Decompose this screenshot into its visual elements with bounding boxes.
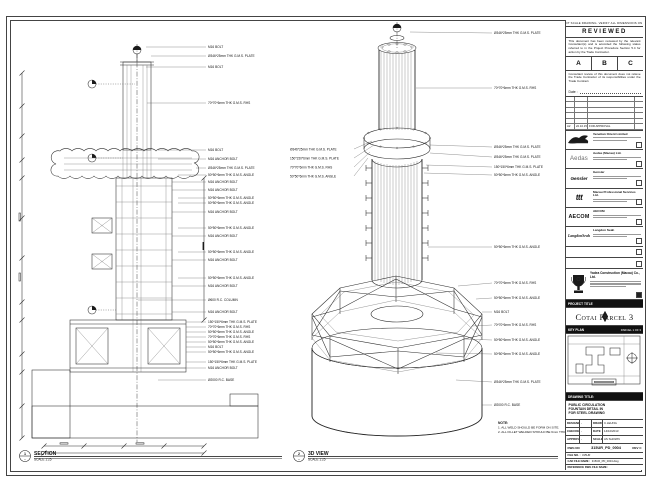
annotation-label: Ø346*25mm THK G.M.S. PLATE <box>494 145 541 149</box>
view-title: 3D VIEW <box>308 451 329 457</box>
detail-number: 2 <box>298 452 300 456</box>
cad-file-label: CAD FILE NAME : <box>568 460 591 463</box>
annotation-label: Ø346*25mm THK G.M.S. PLATE <box>208 54 255 58</box>
file-no-value: 315UR <box>582 454 590 457</box>
note-line: 2. ALL FILLET WELDED SHOULD BE 6mm THK. <box>498 430 566 434</box>
address-line-bar <box>593 217 627 218</box>
review-date-row: Date : <box>566 85 643 96</box>
iso-side-brackets <box>366 165 428 261</box>
annotation-label: Ø346*25mm THK G.M.S. PLATE <box>208 166 255 170</box>
dwg-no-label: DWG NO <box>568 446 580 450</box>
note-line: 1. ALL WELD SHOULD BE FORM ON SITE. <box>498 426 559 430</box>
consultant-row-aecom: AECOM AECOM <box>566 208 643 227</box>
annotation-label: M16 BOLT <box>208 45 223 49</box>
disclaimer-text: DO NOT SCALE DRAWING. VERIFY ALL DIMENSI… <box>566 21 643 25</box>
review-stamp: REVIEWED This document has been reviewed… <box>566 27 643 97</box>
annotation-label: 50*50*6mm THK G.M.S. ANGLE <box>208 276 254 280</box>
date-fill-line <box>580 90 641 94</box>
status-checkbox <box>636 238 642 244</box>
consultant-row-langdonseah: LangdonSeah Langdon Seah <box>566 227 643 246</box>
address-line-bar <box>590 281 641 282</box>
annotation-label: 150*150*6mm THK G.M.S. PLATE <box>494 165 543 169</box>
aecom-logo: AECOM <box>566 208 592 226</box>
revision-rev: A2 <box>566 124 575 129</box>
annotation-label: 150*150*6mm THK G.M.S. PLATE <box>208 360 257 364</box>
annotation-label: 70*70*6mm THK G.M.S. RHS <box>494 323 536 327</box>
annotation-label: 50*50*6mm THK G.M.S. ANGLE <box>208 173 254 177</box>
checked-label: CHECKED <box>566 428 580 435</box>
consultant-row-venetian: Venetian Orient Limited <box>566 131 643 150</box>
annotation-label: 70*70*6mm THK G.M.S. RHS <box>494 281 536 285</box>
revision-date: 22.10.15 <box>575 124 588 129</box>
address-line-bar <box>593 234 641 235</box>
drawn-label: DRAWN <box>592 420 603 427</box>
annotation-label: 50*50*6mm THK G.M.S. ANGLE <box>494 296 540 300</box>
iso-leaders <box>354 32 492 405</box>
annotation-label: Ø346*25mm THK G.M.S. PLATE <box>290 148 337 152</box>
detail-number: 1 <box>24 452 26 456</box>
iso-base-cylinder <box>312 328 482 436</box>
annotation-label: 150*150*6mm THK G.M.S. PLATE <box>208 320 257 324</box>
annotation-label: 50*50*6mm THK G.M.S. ANGLE <box>290 175 336 179</box>
address-line-bar <box>593 199 641 200</box>
consultant-name: Aedas (Macau) Ltd. <box>593 152 641 156</box>
iso-splash-pool <box>371 306 423 322</box>
address-line-bar <box>593 215 641 216</box>
drawing-title-text: PUBLIC CIRCULATION FOUNTAIN DETAIL IN FO… <box>566 401 643 420</box>
status-checkbox <box>636 261 642 267</box>
address-line-bar <box>590 286 626 287</box>
project-title-label: PROJECT TITLE <box>568 302 593 306</box>
annotation-label: Ø346*25mm THK G.M.S. PLATE <box>494 31 541 35</box>
annotation-label: M16 ANCHOR BOLT <box>208 157 238 161</box>
project-title-row: Cotai Parcel 3 <box>566 308 643 326</box>
view-title: SECTION <box>34 451 57 457</box>
annotation-label: M16 BOLT <box>208 148 223 152</box>
status-cell-c: C <box>618 57 643 70</box>
annotation-label: 70*70*6mm THK G.M.S. RHS <box>290 166 332 170</box>
project-title-bar: PROJECT TITLE <box>566 300 643 308</box>
annotation-label: 50*50*6mm THK G.M.S. ANGLE <box>208 350 254 354</box>
cad-file-value: 315UR_PD_0004.dwg <box>592 460 619 463</box>
view-scale: SCALE 1:25 <box>34 458 52 462</box>
revision-row: A2 22.10.15 FOR APPROVAL <box>566 124 643 130</box>
address-line-bar <box>593 176 641 177</box>
annotation-label: 50*50*6mm THK G.M.S. ANGLE <box>208 330 254 334</box>
file-no-label: FILE NO. : <box>568 454 581 457</box>
iso-flange-ring <box>363 127 431 159</box>
aedas-logo: Aedas <box>566 150 592 168</box>
annotation-label: 50*50*6mm THK G.M.S. ANGLE <box>208 340 254 344</box>
annotation-label: 50*50*6mm THK G.M.S. ANGLE <box>494 352 540 356</box>
review-stamp-title: REVIEWED <box>566 27 643 38</box>
annotation-label: 50*50*6mm THK G.M.S. ANGLE <box>494 173 540 177</box>
reference-dwg-row: REFERENCE DWG FILE NAME : <box>566 465 643 470</box>
review-stamp-paragraph: This document has been reviewed by the r… <box>566 38 643 56</box>
consultant-name: AECOM <box>593 210 641 214</box>
designed-value: - <box>580 420 592 427</box>
consultant-name: Macau Professional Services Ltd. <box>593 191 641 198</box>
level-marker-top <box>133 46 141 62</box>
drawing-title-label: DRAWING TITLE: <box>568 395 594 399</box>
annotation-label: M16 ANCHOR BOLT <box>208 258 238 262</box>
iso-frame-braces <box>312 279 482 369</box>
annotation-label: 50*50*6mm THK G.M.S. ANGLE <box>208 226 254 230</box>
status-checkbox <box>636 249 642 255</box>
annotation-label: 50*50*6mm THK G.M.S. ANGLE <box>494 245 540 249</box>
revision-desc: FOR APPROVAL <box>588 124 635 129</box>
reference-dwg-label: REFERENCE DWG FILE NAME : <box>568 466 609 469</box>
annotation-label: Ø600 R.C. COLUMN <box>208 298 238 302</box>
detail-sheet-ref: - <box>298 458 300 462</box>
key-plan-label: KEY PLAN <box>568 328 584 332</box>
revision-cloud-band <box>51 149 199 179</box>
annotation-label: Ø2000 R.C. BASE <box>208 378 234 382</box>
address-line-bar <box>593 137 641 138</box>
section-view: M16 BOLT Ø346*25mm THK G.M.S. PLATE M16 … <box>8 18 286 464</box>
scale-value: AS SHOWN <box>603 436 643 443</box>
date-value: 14/10/2013 <box>603 428 643 435</box>
annotation-label: M16 ANCHOR BOLT <box>208 284 238 288</box>
key-plan-parcel-label: PARCEL 1 OF 3 <box>621 328 641 332</box>
iso-level-marker <box>393 22 401 48</box>
status-checkbox <box>636 180 642 186</box>
status-cell-b: B <box>592 57 618 70</box>
address-line-bar <box>593 140 627 141</box>
venetian-logo-icon <box>566 131 592 149</box>
consultant-row-mps: ttt Macau Professional Services Ltd. <box>566 189 643 208</box>
langdon-seah-logo: LangdonSeah <box>566 227 592 245</box>
field-row: CHECKED - DATE 14/10/2013 <box>566 428 643 436</box>
annotation-label: 50*50*6mm THK G.M.S. ANGLE <box>494 338 540 342</box>
dwg-number-row: DWG NO 315UR_PD_0004 REV C <box>566 444 643 453</box>
annotation-label: M16 BOLT <box>494 310 509 314</box>
emblem-icon <box>602 311 608 322</box>
status-checkbox <box>636 142 642 148</box>
annotation-label: M16 ANCHOR BOLT <box>208 366 238 370</box>
contractor-block: Yadea Construction (Macau) Co., Ltd. <box>566 269 643 300</box>
address-line-bar <box>593 157 641 158</box>
iso-annotations-right: Ø346*25mm THK G.M.S. PLATE 70*70*6mm THK… <box>494 31 543 407</box>
status-cell-a: A <box>566 57 592 70</box>
annotation-label: M16 ANCHOR BOLT <box>208 234 238 238</box>
annotation-label: Ø346*25mm THK G.M.S. PLATE <box>494 380 541 384</box>
status-checkbox <box>636 161 642 167</box>
date-label: DATE <box>592 428 603 435</box>
consultant-name: Gensler <box>593 171 641 175</box>
section-title: 1 - SECTION SCALE 1:25 <box>20 451 283 462</box>
designed-label: DESIGNED <box>566 420 580 427</box>
revision-table: A2 22.10.15 FOR APPROVAL <box>566 97 643 131</box>
consultant-name: Venetian Orient Limited <box>593 133 641 137</box>
review-stamp-paragraph: Consultant review of this document does … <box>566 71 643 85</box>
title-block-column: DO NOT SCALE DRAWING. VERIFY ALL DIMENSI… <box>565 20 643 470</box>
iso-annotations-left: Ø346*25mm THK G.M.S. PLATE 150*150*6mm T… <box>290 148 339 179</box>
status-checkbox <box>636 199 642 205</box>
annotation-label: 50*50*6mm THK G.M.S. ANGLE <box>208 250 254 254</box>
status-checkbox <box>636 219 642 225</box>
annotation-label: M16 ANCHOR BOLT <box>208 188 238 192</box>
address-line-bar <box>593 201 627 202</box>
iso-note: NOTE: 1. ALL WELD SHOULD BE FORM ON SITE… <box>498 421 566 434</box>
date-label: Date : <box>569 90 578 94</box>
checked-value: - <box>580 428 592 435</box>
drawing-sheet: M16 BOLT Ø346*25mm THK G.M.S. PLATE M16 … <box>0 0 650 488</box>
consultant-row-gensler: Gensler Gensler <box>566 169 643 188</box>
annotation-label: M16 ANCHOR BOLT <box>208 180 238 184</box>
section-column <box>92 176 207 323</box>
consultant-name: Langdon Seah <box>593 229 641 233</box>
annotation-label: Ø2000 R.C. BASE <box>494 403 520 407</box>
drawn-value: C.LEUNG <box>603 420 643 427</box>
annotation-label: 70*70*6mm THK G.M.S. RHS <box>208 325 250 329</box>
contractor-logo-icon <box>566 269 590 299</box>
revision-by <box>635 124 643 129</box>
signature-fields: DESIGNED - DRAWN C.LEUNG CHECKED - DATE … <box>566 420 643 444</box>
key-plan-graphic <box>566 334 643 393</box>
consultant-row-empty <box>566 258 643 269</box>
annotation-label: M16 BOLT <box>208 65 223 69</box>
review-status-row: A B C <box>566 56 643 71</box>
field-row: APPROVED - SCALE AS SHOWN <box>566 436 643 444</box>
annotation-label: 150*150*6mm THK G.M.S. PLATE <box>290 157 339 161</box>
view-scale: SCALE 1:25 <box>308 458 326 462</box>
drawing-title-line: FOR STEEL DRAWING <box>569 411 641 415</box>
annotation-label: M16 ANCHOR BOLT <box>208 210 238 214</box>
contractor-stamp-box <box>636 292 642 298</box>
scale-label: SCALE <box>592 436 603 443</box>
address-line-bar <box>590 283 641 284</box>
consultant-row-empty <box>566 247 643 258</box>
dwg-no-value: 315UR_PD_0004 <box>582 446 631 450</box>
iso-pipe-cluster <box>378 36 416 131</box>
drawing-title-bar: DRAWING TITLE: <box>566 393 643 401</box>
ttt-logo: ttt <box>566 189 592 207</box>
gensler-logo: Gensler <box>566 169 592 187</box>
detail-sheet-ref: - <box>24 458 26 462</box>
iso-octagon-frame <box>312 276 482 374</box>
dimension-chain-bottom <box>42 443 207 456</box>
address-line-bar <box>593 236 627 237</box>
disclaimer-strip: DO NOT SCALE DRAWING. VERIFY ALL DIMENSI… <box>566 20 643 27</box>
level-markers-left <box>88 80 135 314</box>
approved-value: - <box>580 436 592 443</box>
dimension-chain-left <box>19 71 25 441</box>
address-line-bar <box>593 178 627 179</box>
annotation-label: 70*70*6mm THK G.M.S. RHS <box>494 86 536 90</box>
annotation-label: 70*70*6mm THK G.M.S. RHS <box>208 335 250 339</box>
iso-title: 2 - 3D VIEW SCALE 1:25 <box>294 451 559 462</box>
section-annotations: M16 BOLT Ø346*25mm THK G.M.S. PLATE M16 … <box>208 45 257 382</box>
note-heading: NOTE: <box>498 421 508 425</box>
dwg-rev-value: REV C <box>632 446 641 450</box>
address-line-bar <box>593 159 627 160</box>
section-baseplate <box>70 320 186 372</box>
annotation-label: 50*50*6mm THK G.M.S. ANGLE <box>208 196 254 200</box>
annotation-label: 50*50*6mm THK G.M.S. ANGLE <box>208 201 254 205</box>
annotation-label: Ø346*25mm THK G.M.S. PLATE <box>494 155 541 159</box>
field-row: DESIGNED - DRAWN C.LEUNG <box>566 420 643 428</box>
contractor-name: Yadea Construction (Macau) Co., Ltd. <box>590 272 641 280</box>
consultant-row-aedas: Aedas Aedas (Macau) Ltd. <box>566 150 643 169</box>
iso-view: Ø346*25mm THK G.M.S. PLATE 70*70*6mm THK… <box>286 18 564 464</box>
approved-label: APPROVED <box>566 436 580 443</box>
annotation-label: M16 ANCHOR BOLT <box>208 310 238 314</box>
annotation-label: 70*70*6mm THK G.M.S. RHS <box>208 101 250 105</box>
annotation-label: M16 BOLT <box>208 345 223 349</box>
key-plan-bar: KEY PLAN PARCEL 1 OF 3 <box>566 326 643 334</box>
iso-column-shaft <box>366 159 428 288</box>
